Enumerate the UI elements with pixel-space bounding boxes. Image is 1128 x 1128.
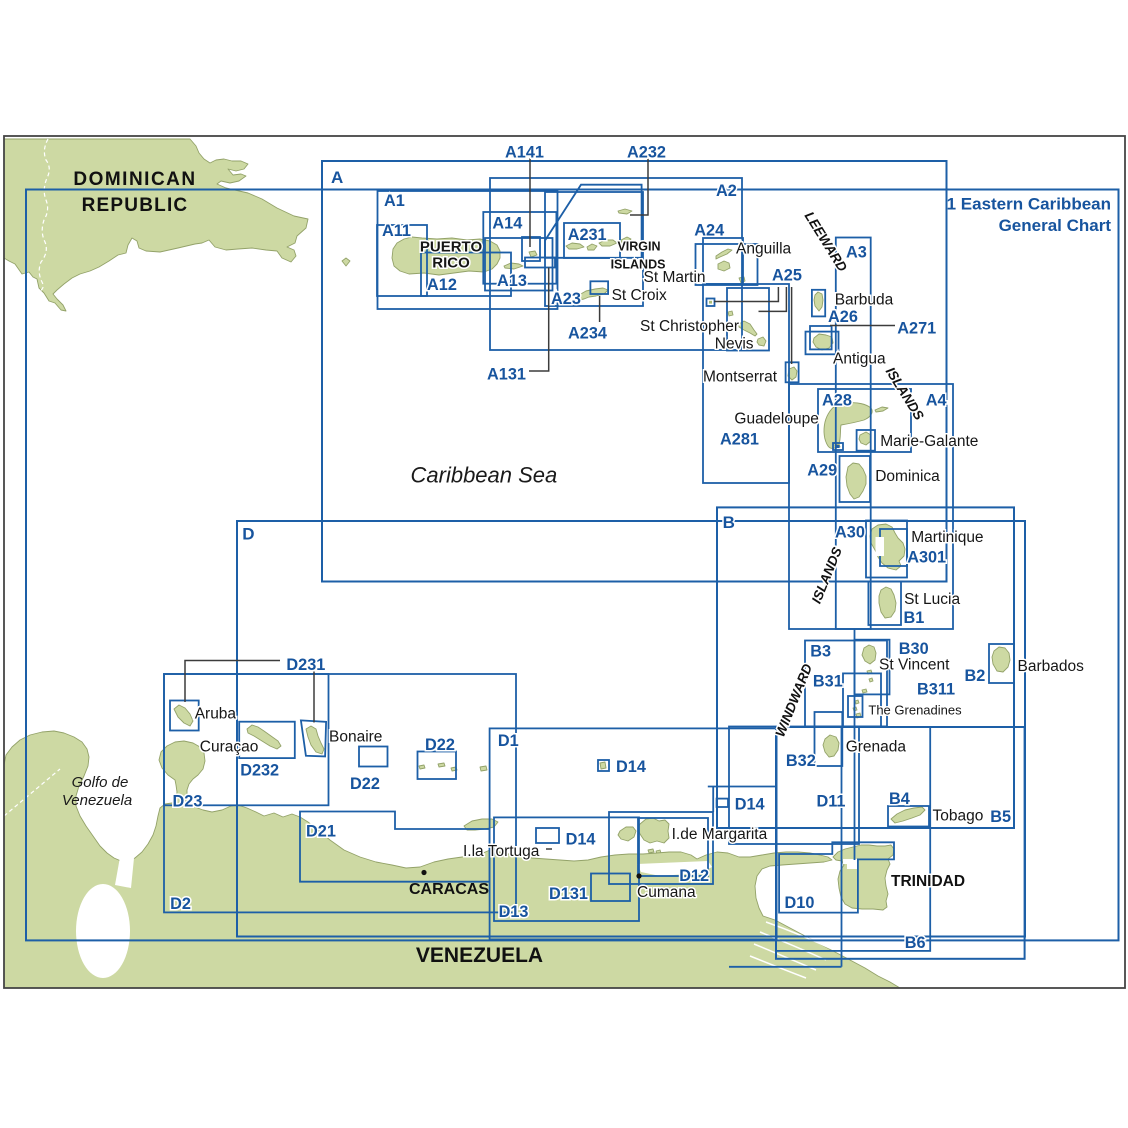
svg-text:VENEZUELA: VENEZUELA (416, 944, 543, 967)
svg-text:REPUBLIC: REPUBLIC (82, 195, 189, 216)
svg-text:D11: D11 (817, 793, 846, 811)
svg-text:Bonaire: Bonaire (329, 729, 382, 746)
svg-text:A25: A25 (772, 267, 802, 285)
svg-text:D13: D13 (499, 903, 529, 921)
svg-text:D: D (242, 525, 254, 544)
svg-text:Antigua: Antigua (833, 351, 886, 368)
svg-text:D232: D232 (240, 762, 279, 780)
svg-text:D21: D21 (306, 823, 336, 841)
svg-text:A141: A141 (505, 144, 544, 162)
svg-text:VIRGIN: VIRGIN (617, 240, 660, 254)
svg-text:B6: B6 (905, 934, 926, 952)
svg-text:B1: B1 (904, 609, 925, 627)
svg-text:TRINIDAD: TRINIDAD (891, 873, 965, 890)
svg-text:The Grenadines: The Grenadines (868, 703, 962, 718)
svg-text:St Vincent: St Vincent (879, 657, 950, 674)
svg-text:A24: A24 (694, 222, 724, 240)
svg-text:I.la Tortuga: I.la Tortuga (463, 843, 540, 860)
svg-text:D22: D22 (425, 736, 455, 754)
svg-text:B2: B2 (965, 667, 986, 685)
svg-text:A1: A1 (384, 192, 405, 210)
svg-text:Montserrat: Montserrat (703, 369, 778, 386)
svg-text:A3: A3 (846, 244, 867, 262)
svg-text:D10: D10 (785, 894, 815, 912)
svg-text:D2: D2 (170, 895, 191, 913)
svg-text:A14: A14 (492, 215, 522, 233)
svg-text:D14: D14 (616, 758, 646, 776)
svg-text:Curaçao: Curaçao (200, 739, 259, 756)
svg-text:A232: A232 (627, 144, 666, 162)
svg-text:A30: A30 (835, 524, 865, 542)
svg-text:Tobago: Tobago (933, 808, 984, 825)
svg-text:Dominica: Dominica (875, 468, 940, 485)
svg-text:A28: A28 (822, 392, 852, 410)
svg-text:A29: A29 (807, 462, 837, 480)
svg-text:D23: D23 (173, 793, 203, 811)
svg-text:B5: B5 (990, 808, 1011, 826)
svg-text:B4: B4 (889, 790, 910, 808)
svg-text:A23: A23 (551, 290, 581, 308)
svg-text:A13: A13 (497, 272, 527, 290)
svg-text:A231: A231 (568, 226, 607, 244)
svg-text:Grenada: Grenada (846, 739, 907, 756)
svg-text:B30: B30 (899, 640, 929, 658)
svg-text:A: A (331, 168, 343, 187)
svg-text:Martinique: Martinique (911, 529, 983, 546)
svg-text:A281: A281 (720, 431, 759, 449)
svg-text:St Martin: St Martin (644, 269, 706, 286)
svg-text:St Lucia: St Lucia (904, 591, 960, 608)
svg-text:D231: D231 (286, 656, 325, 674)
svg-text:General Chart: General Chart (999, 216, 1112, 235)
svg-text:B31: B31 (813, 673, 843, 691)
svg-text:Marie-Galante: Marie-Galante (880, 433, 978, 450)
svg-text:1 Eastern Caribbean: 1 Eastern Caribbean (947, 195, 1111, 214)
svg-text:Guadeloupe: Guadeloupe (734, 411, 818, 428)
svg-text:D22: D22 (350, 775, 380, 793)
svg-text:A131: A131 (487, 366, 526, 384)
svg-text:A4: A4 (926, 392, 947, 410)
svg-text:A12: A12 (427, 276, 457, 294)
svg-text:Venezuela: Venezuela (62, 792, 132, 809)
svg-text:St Christopher: St Christopher (640, 318, 739, 335)
svg-text:B311: B311 (917, 681, 955, 699)
svg-text:St Croix: St Croix (612, 287, 667, 304)
svg-text:Anguilla: Anguilla (736, 241, 792, 258)
svg-text:D14: D14 (735, 796, 765, 814)
svg-text:Golfo de: Golfo de (72, 774, 129, 791)
svg-text:A2: A2 (716, 182, 737, 200)
svg-text:Caribbean Sea: Caribbean Sea (411, 463, 558, 488)
svg-text:A11: A11 (382, 222, 411, 240)
svg-text:D14: D14 (566, 831, 596, 849)
svg-text:Barbuda: Barbuda (835, 292, 894, 309)
svg-text:A301: A301 (907, 549, 946, 567)
svg-text:D12: D12 (679, 867, 709, 885)
svg-text:D131: D131 (549, 885, 588, 903)
svg-text:A26: A26 (828, 308, 858, 326)
svg-text:B3: B3 (810, 643, 831, 661)
svg-text:D1: D1 (498, 732, 519, 750)
svg-text:A234: A234 (568, 325, 607, 343)
svg-text:B32: B32 (786, 752, 816, 770)
svg-text:RICO: RICO (432, 255, 470, 272)
svg-text:DOMINICAN: DOMINICAN (73, 169, 196, 190)
svg-text:Cumana: Cumana (637, 884, 696, 901)
svg-text:I.de Margarita: I.de Margarita (672, 826, 768, 843)
svg-text:A271: A271 (897, 320, 936, 338)
svg-text:PUERTO: PUERTO (420, 239, 483, 256)
svg-text:Nevis: Nevis (715, 336, 754, 353)
svg-text:Aruba: Aruba (195, 706, 237, 723)
svg-text:B: B (723, 513, 735, 532)
svg-text:CARACAS: CARACAS (409, 881, 489, 898)
svg-text:Barbados: Barbados (1018, 658, 1085, 675)
